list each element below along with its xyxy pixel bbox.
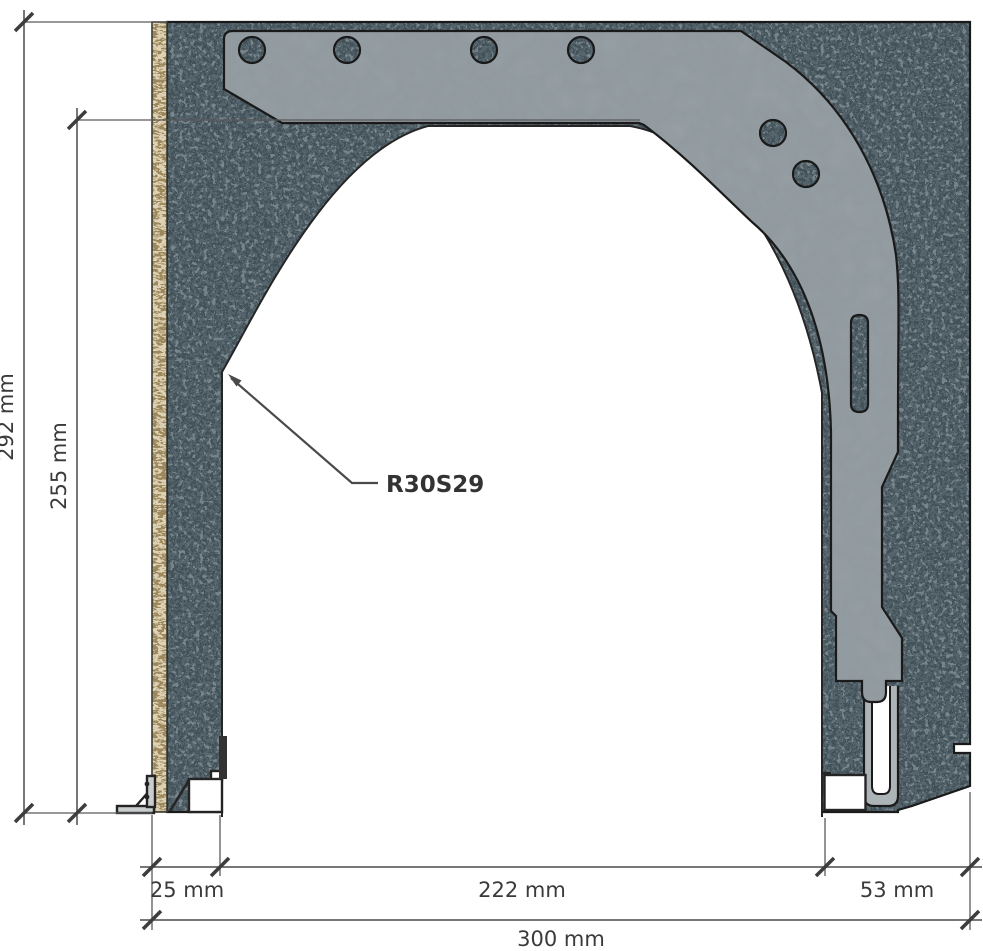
arched-opening — [222, 126, 822, 817]
dim-row-widths: 25 mm 222 mm 53 mm — [140, 858, 982, 902]
dim-label-left-wall: 25 mm — [150, 878, 224, 902]
dim-label-opening-width: 222 mm — [478, 878, 566, 902]
osb-fill — [152, 22, 167, 812]
roller-shutter-section-drawing: 292 mm 255 mm 25 mm 222 mm 53 mm 300 mm — [0, 0, 983, 951]
technical-drawing-canvas: 292 mm 255 mm 25 mm 222 mm 53 mm 300 mm — [0, 0, 983, 951]
dim-label-total-height: 292 mm — [0, 373, 18, 461]
part-label: R30S29 — [386, 472, 484, 498]
clip-screw — [145, 795, 150, 800]
clip-screw — [145, 782, 150, 787]
inner-face-bar — [219, 736, 227, 779]
dim-label-inner-height: 255 mm — [47, 422, 71, 510]
dim-total-height: 292 mm — [0, 10, 33, 825]
dim-inner-height: 255 mm — [47, 108, 86, 825]
dim-total-width: 300 mm — [140, 911, 982, 951]
dim-label-right-wall: 53 mm — [860, 878, 934, 902]
outer-face-clip — [147, 776, 155, 807]
right-frame-rebate — [825, 775, 866, 810]
guide-rail-assembly — [864, 686, 898, 806]
dim-label-total-width: 300 mm — [517, 927, 605, 951]
frame-rebate — [189, 779, 222, 812]
osb-strip — [152, 22, 167, 812]
